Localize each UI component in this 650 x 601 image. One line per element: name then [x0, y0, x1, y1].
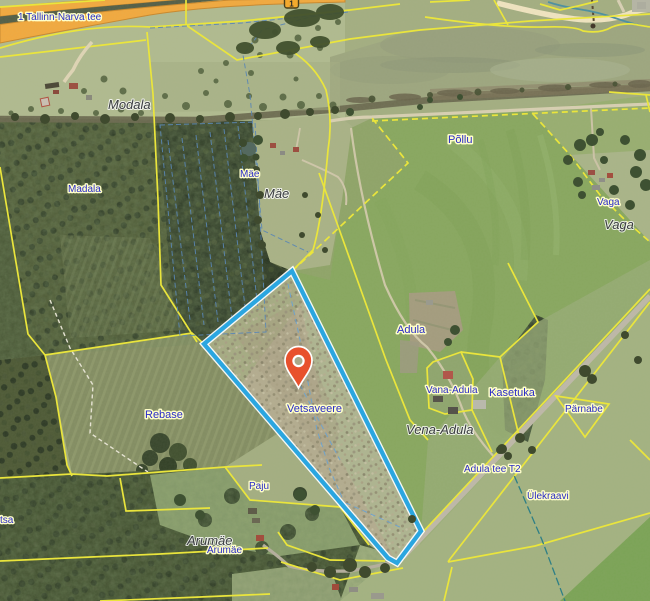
svg-text:Adula tee T2: Adula tee T2: [464, 464, 521, 475]
svg-text:tsa: tsa: [0, 515, 14, 526]
svg-text:Vetsaveere: Vetsaveere: [287, 403, 342, 415]
svg-text:Vaga: Vaga: [597, 197, 620, 208]
svg-text:Paju: Paju: [249, 481, 269, 492]
svg-text:Madala: Madala: [68, 184, 101, 195]
svg-text:Põllu: Põllu: [448, 134, 472, 146]
svg-text:Mäe: Mäe: [264, 186, 289, 201]
svg-text:Adula: Adula: [397, 324, 426, 336]
svg-text:Modala: Modala: [108, 97, 151, 112]
svg-text:Vena-Adula: Vena-Adula: [406, 422, 473, 437]
svg-text:Vaga: Vaga: [604, 217, 634, 232]
svg-text:Vana-Adula: Vana-Adula: [426, 385, 478, 396]
svg-text:Pärnabe: Pärnabe: [565, 404, 603, 415]
svg-text:Ülekraavi: Ülekraavi: [527, 490, 569, 502]
svg-text:Mäe: Mäe: [240, 169, 260, 180]
svg-text:Arumäe: Arumäe: [207, 545, 242, 556]
svg-text:Rebase: Rebase: [145, 409, 183, 421]
svg-text:1 Tallinn-Narva tee: 1 Tallinn-Narva tee: [18, 12, 102, 23]
svg-text:Kasetuka: Kasetuka: [489, 387, 536, 399]
